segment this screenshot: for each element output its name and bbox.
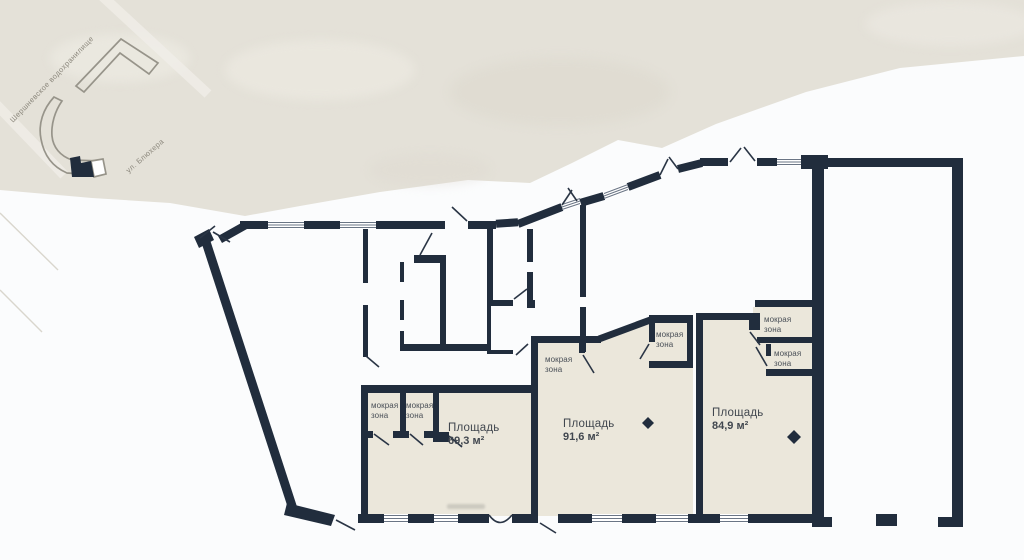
apartment-91-region[interactable] — [534, 319, 693, 516]
apartment-69-region[interactable] — [363, 388, 533, 516]
floor-plan-canvas — [0, 0, 1024, 560]
faded-dimension-text — [447, 504, 485, 509]
site-plan-page: Шершневское водохранилище ул. Блюхера мо… — [0, 0, 1024, 560]
